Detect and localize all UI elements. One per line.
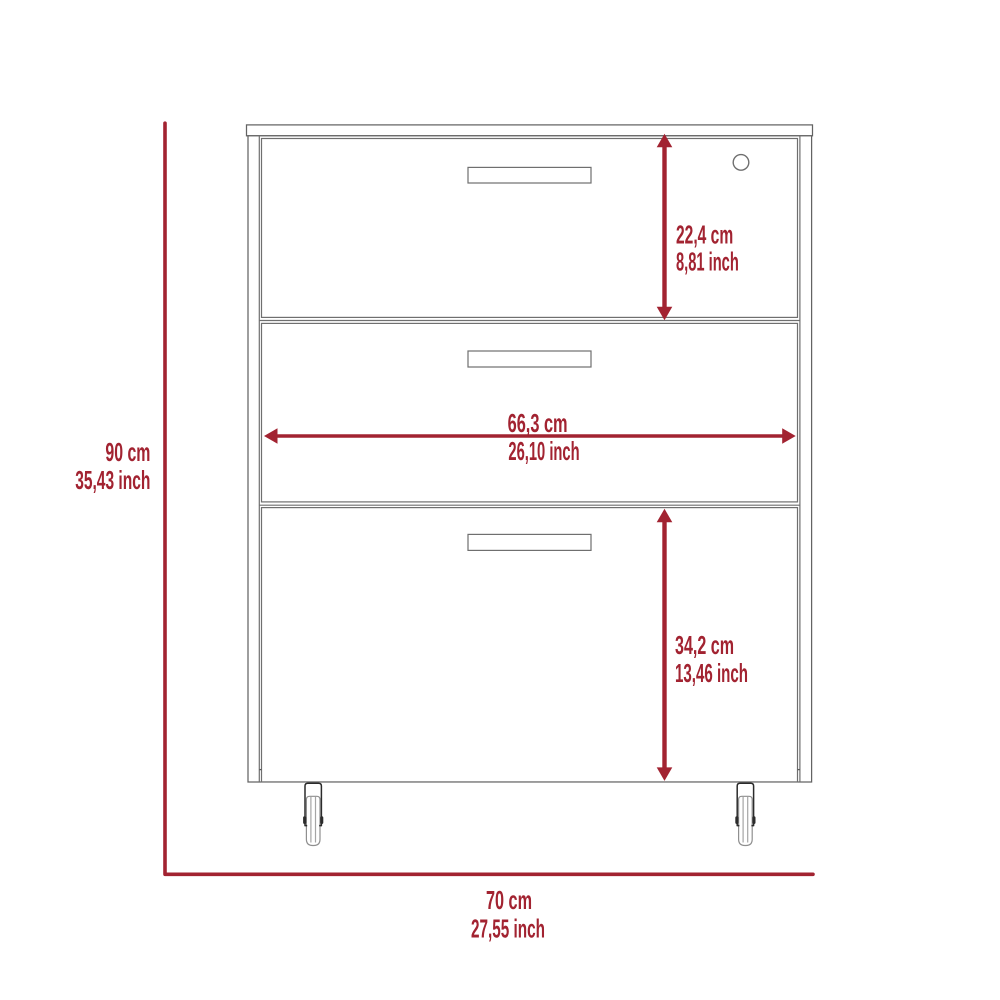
svg-text:70 cm: 70 cm <box>486 885 532 915</box>
svg-text:13,46 inch: 13,46 inch <box>675 658 748 688</box>
svg-text:34,2 cm: 34,2 cm <box>675 630 734 660</box>
svg-text:26,10 inch: 26,10 inch <box>508 436 579 466</box>
svg-text:27,55 inch: 27,55 inch <box>471 914 545 944</box>
svg-text:22,4 cm: 22,4 cm <box>676 220 733 250</box>
svg-text:90 cm: 90 cm <box>105 437 150 467</box>
svg-text:35,43 inch: 35,43 inch <box>75 465 150 495</box>
svg-text:8,81 inch: 8,81 inch <box>676 247 739 277</box>
svg-text:66,3 cm: 66,3 cm <box>508 408 568 438</box>
